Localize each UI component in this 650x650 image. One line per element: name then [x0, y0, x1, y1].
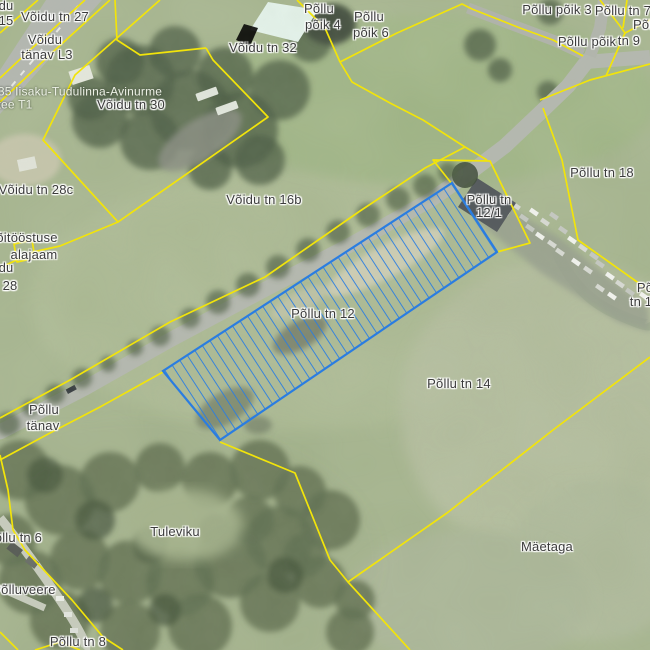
cadastral-map-viewport[interactable]: du15Võidu tn 27Võidutänav L335 Iisaku-Tu… [0, 0, 650, 650]
aerial-imagery-canvas [0, 0, 650, 650]
